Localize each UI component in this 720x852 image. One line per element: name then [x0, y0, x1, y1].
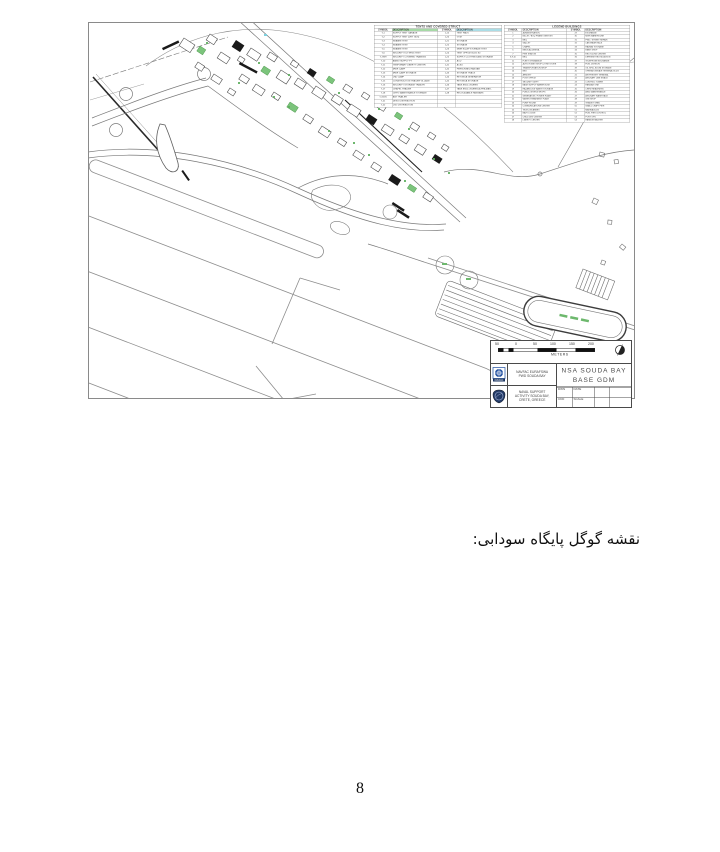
legend-cell: 54	[567, 119, 585, 122]
persian-caption: نقشه گوگل پایگاه سودابی:	[280, 530, 640, 548]
north-arrow-icon	[614, 344, 626, 356]
legend-cell	[456, 103, 502, 107]
org-line: PWD SOUDA BAY	[519, 375, 546, 379]
legend-cell: LIBERTY CENTER	[522, 119, 567, 122]
org-navfac-text: NAVFAC EURAFSWA PWD SOUDA BAY	[508, 364, 556, 386]
site-plan-figure: TENTS AND COVERED STRUCT SYMBOL DESCRIPT…	[88, 22, 635, 408]
page-number: 8	[0, 780, 720, 798]
navfac-logo: NAVFAC	[491, 364, 507, 386]
legend-cell: HARBOR MASTER	[585, 119, 630, 122]
org-nsa-text: NAVAL SUPPORT ACTIVITY SOUDA BAY, CRETE,…	[508, 386, 556, 407]
scale-tick: 150	[569, 343, 575, 347]
legend-row: 28LIBERTY CENTER54HARBOR MASTER	[504, 119, 630, 122]
title-block: 50 0 50 100 150 200 METERS	[490, 340, 632, 408]
field-dwn: DWN	[557, 387, 572, 397]
drawing-title: NSA SOUDA BAY BASE GDM	[557, 364, 631, 387]
svg-text:NAVFAC: NAVFAC	[495, 379, 504, 382]
scale-tick: 200	[588, 343, 594, 347]
scale-unit-label: METERS	[551, 353, 569, 357]
legend-cell: T-22	[374, 103, 392, 107]
scale-tick: 50	[495, 343, 499, 347]
drawing-title-line2: BASE GDM	[573, 375, 615, 384]
scale-tick: 50	[533, 343, 537, 347]
scale-tick: 100	[550, 343, 556, 347]
legend-table-buildings: LEGEND BUILDINGS SYMBOL DESCRIPTION SYMB…	[504, 25, 630, 122]
field-blank	[594, 397, 609, 407]
field-blank	[609, 387, 631, 397]
field-blank	[609, 397, 631, 407]
drawing-title-line1: NSA SOUDA BAY	[562, 366, 627, 375]
document-page: { "page": { "caption_rtl": "نقشه گوگل پا…	[0, 0, 720, 852]
nsa-crest-logo	[491, 386, 507, 407]
legend-cell: 28	[504, 119, 522, 122]
field-scale: SCALE	[572, 397, 594, 407]
scale-tick: 0	[515, 343, 517, 347]
legend-cell	[438, 103, 456, 107]
legend-row: T-22LSO DISTRIBUTION	[374, 103, 502, 107]
legend-table-tents: TENTS AND COVERED STRUCT SYMBOL DESCRIPT…	[374, 25, 502, 107]
org-line: CRETE, GREECE	[519, 399, 546, 403]
legend-cell: LSO DISTRIBUTION	[392, 103, 438, 107]
title-block-fields: DWN DATE CKD SCALE	[557, 387, 631, 407]
scale-bar: 50 0 50 100 150 200 METERS	[491, 341, 631, 364]
field-blank	[594, 387, 609, 397]
scale-bar-graphic	[498, 348, 595, 352]
field-ckd: CKD	[557, 397, 572, 407]
field-date: DATE	[572, 387, 594, 397]
